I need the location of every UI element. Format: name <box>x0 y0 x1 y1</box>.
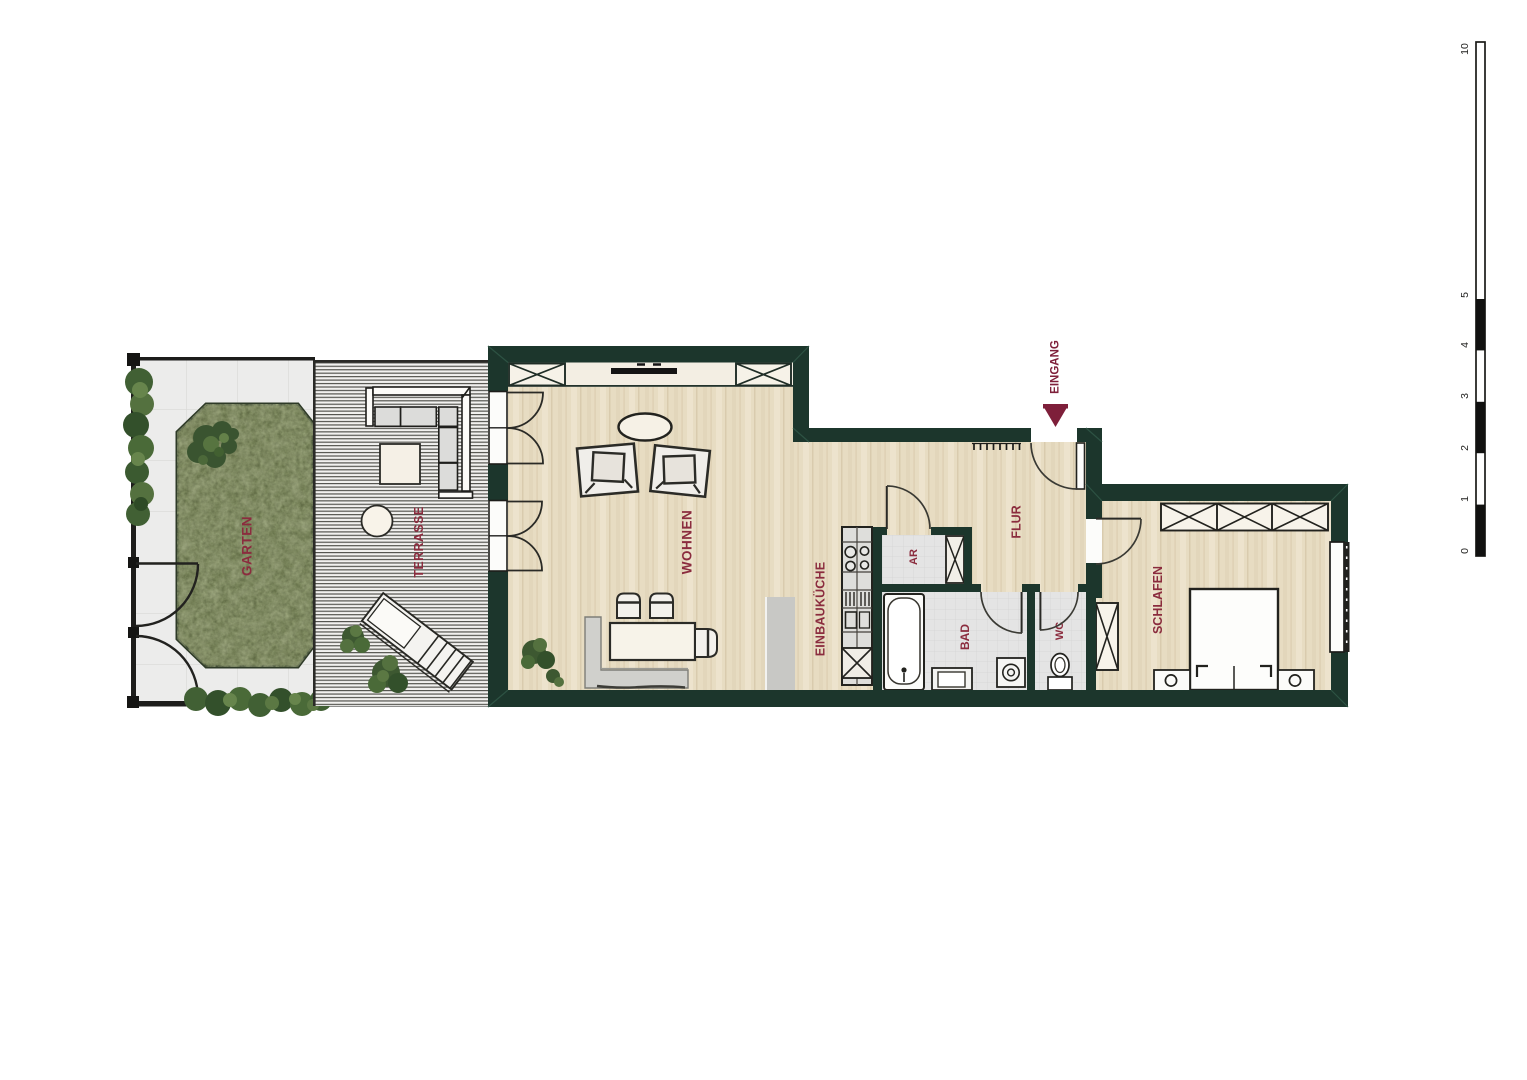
svg-text:5: 5 <box>1459 292 1471 298</box>
svg-text:4: 4 <box>1459 342 1471 348</box>
svg-text:GARTEN: GARTEN <box>240 516 255 576</box>
svg-text:1: 1 <box>1459 496 1471 502</box>
svg-text:TERRASSE: TERRASSE <box>412 506 426 577</box>
svg-text:SCHLAFEN: SCHLAFEN <box>1151 566 1165 634</box>
svg-text:AR: AR <box>908 549 920 565</box>
svg-text:2: 2 <box>1459 445 1471 451</box>
svg-text:10: 10 <box>1459 43 1471 55</box>
svg-text:FLUR: FLUR <box>1010 505 1024 538</box>
svg-text:EINGANG: EINGANG <box>1050 340 1062 394</box>
svg-text:BAD: BAD <box>958 624 972 650</box>
svg-text:EINBAUKÜCHE: EINBAUKÜCHE <box>813 562 828 657</box>
svg-text:WOHNEN: WOHNEN <box>680 510 695 575</box>
svg-text:0: 0 <box>1459 548 1471 554</box>
svg-text:3: 3 <box>1459 393 1471 399</box>
